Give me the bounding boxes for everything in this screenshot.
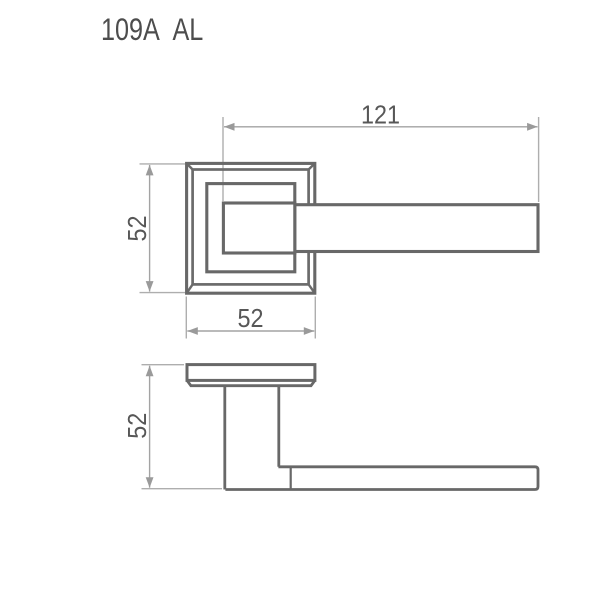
- svg-text:52: 52: [124, 413, 152, 439]
- svg-text:121: 121: [361, 101, 400, 129]
- svg-text:109A: 109A: [101, 12, 160, 47]
- svg-text:AL: AL: [173, 12, 204, 47]
- svg-text:52: 52: [237, 305, 263, 333]
- svg-text:52: 52: [124, 215, 152, 241]
